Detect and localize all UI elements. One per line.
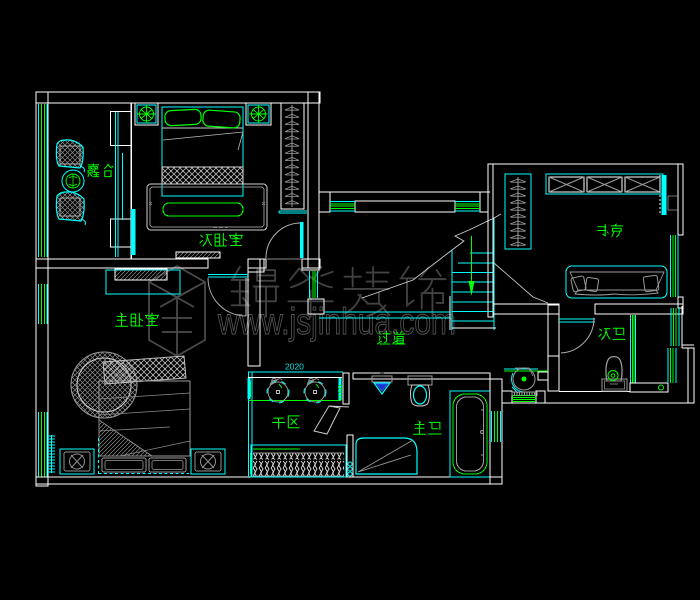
svg-text:2020: 2020	[285, 362, 304, 372]
svg-text:1160: 1160	[336, 385, 345, 401]
svg-text:www.jsjinhua.com: www.jsjinhua.com	[217, 301, 456, 342]
